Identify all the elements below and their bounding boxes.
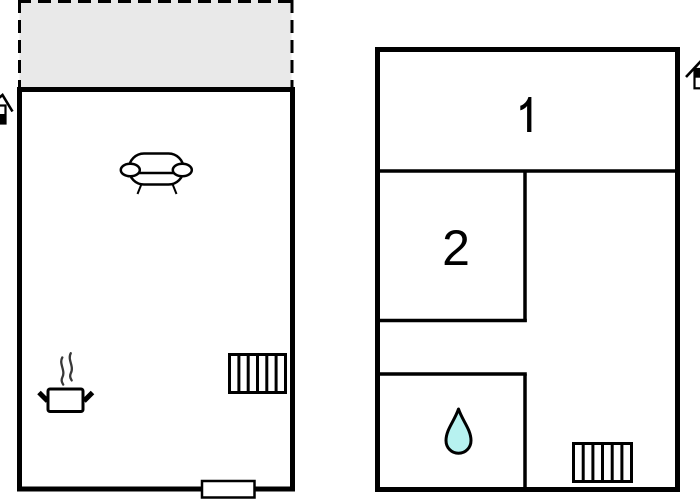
- svg-text:2: 2: [442, 220, 470, 276]
